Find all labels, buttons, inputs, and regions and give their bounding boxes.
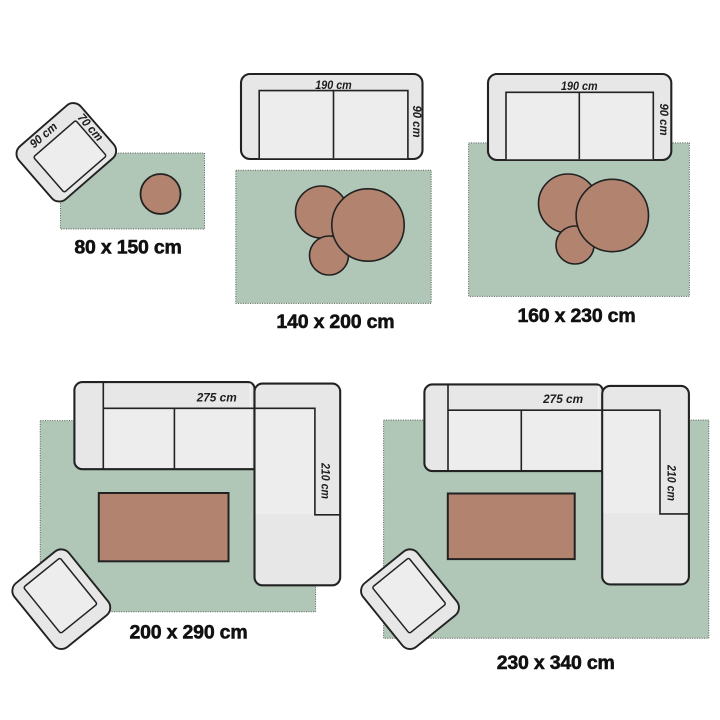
svg-text:140 x 200 cm: 140 x 200 cm [276,311,394,333]
svg-text:190 cm: 190 cm [315,78,352,92]
svg-text:230 x 340 cm: 230 x 340 cm [497,652,615,674]
svg-text:90 cm: 90 cm [410,106,424,138]
svg-text:210 cm: 210 cm [665,464,679,501]
svg-text:275 cm: 275 cm [542,392,583,406]
svg-text:90 cm: 90 cm [657,104,671,136]
svg-text:190 cm: 190 cm [561,79,598,93]
svg-text:160 x 230 cm: 160 x 230 cm [518,305,636,327]
svg-text:275 cm: 275 cm [196,390,237,404]
svg-text:210 cm: 210 cm [319,462,333,499]
svg-text:80 x 150 cm: 80 x 150 cm [74,236,181,258]
svg-text:200 x 290 cm: 200 x 290 cm [130,622,248,644]
